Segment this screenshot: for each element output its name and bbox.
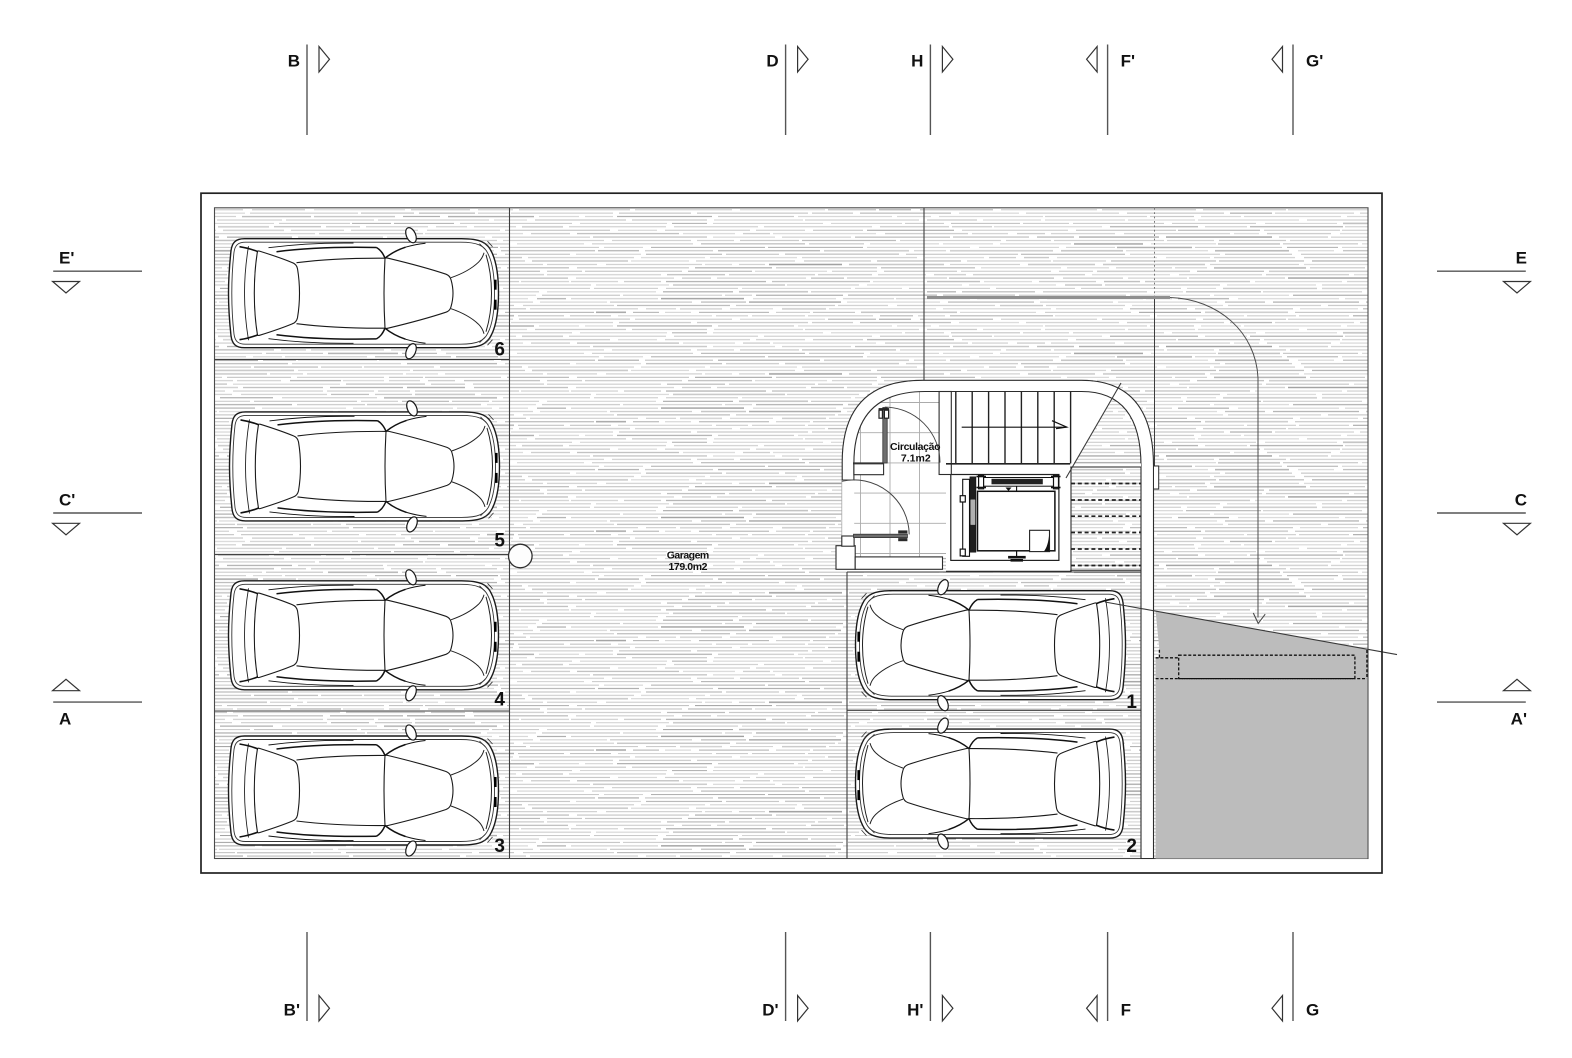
svg-text:4: 4	[494, 690, 505, 711]
svg-text:B: B	[288, 52, 300, 71]
svg-text:C: C	[1515, 491, 1527, 510]
svg-text:D: D	[766, 52, 778, 71]
svg-text:E: E	[1516, 249, 1527, 268]
svg-text:G': G'	[1306, 52, 1323, 71]
svg-text:G: G	[1306, 1001, 1319, 1020]
svg-text:2: 2	[1126, 836, 1137, 857]
svg-text:6: 6	[494, 340, 505, 361]
svg-text:D': D'	[762, 1001, 778, 1020]
svg-text:C': C'	[59, 491, 75, 510]
svg-text:1: 1	[1126, 692, 1137, 713]
svg-text:E': E'	[59, 249, 74, 268]
svg-text:A: A	[59, 709, 71, 728]
svg-text:H: H	[911, 52, 923, 71]
svg-text:H': H'	[907, 1001, 923, 1020]
svg-text:179.0m2: 179.0m2	[669, 561, 708, 573]
svg-text:F: F	[1121, 1001, 1131, 1020]
svg-text:Circulação: Circulação	[890, 441, 941, 453]
svg-text:5: 5	[494, 531, 505, 552]
svg-text:F': F'	[1121, 52, 1135, 71]
svg-text:7.1m2: 7.1m2	[901, 452, 931, 464]
svg-text:3: 3	[494, 836, 505, 857]
svg-text:A': A'	[1511, 709, 1527, 728]
svg-text:B': B'	[284, 1001, 300, 1020]
svg-text:Garagem: Garagem	[667, 550, 710, 562]
